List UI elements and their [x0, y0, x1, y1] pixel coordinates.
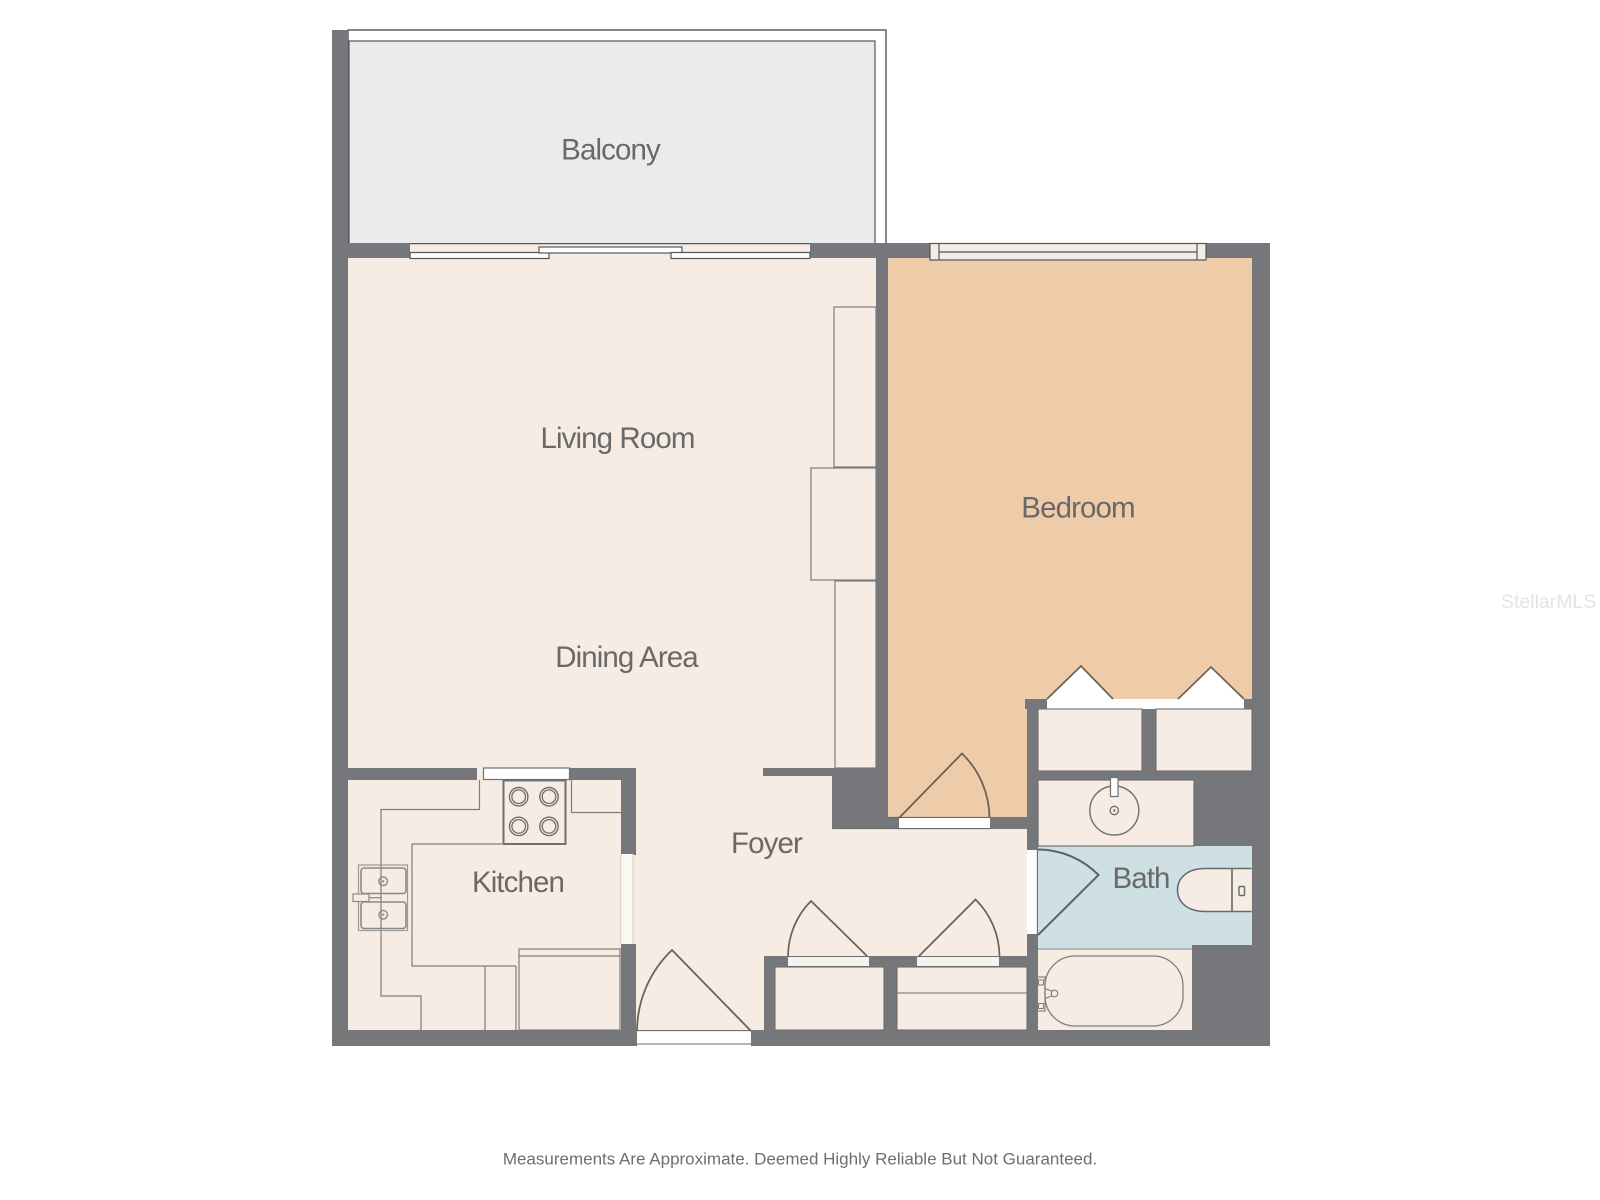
svg-text:Balcony: Balcony: [561, 134, 661, 167]
svg-text:Measurements Are Approximate.: Measurements Are Approximate. Deemed Hig…: [503, 1150, 1097, 1169]
svg-text:StellarMLS: StellarMLS: [1501, 591, 1596, 613]
svg-text:Bath: Bath: [1112, 862, 1169, 895]
svg-text:Living Room: Living Room: [540, 422, 694, 455]
svg-text:Dining Area: Dining Area: [555, 641, 699, 674]
svg-text:Kitchen: Kitchen: [472, 866, 564, 899]
svg-text:Foyer: Foyer: [731, 827, 803, 860]
svg-text:Bedroom: Bedroom: [1021, 492, 1134, 525]
